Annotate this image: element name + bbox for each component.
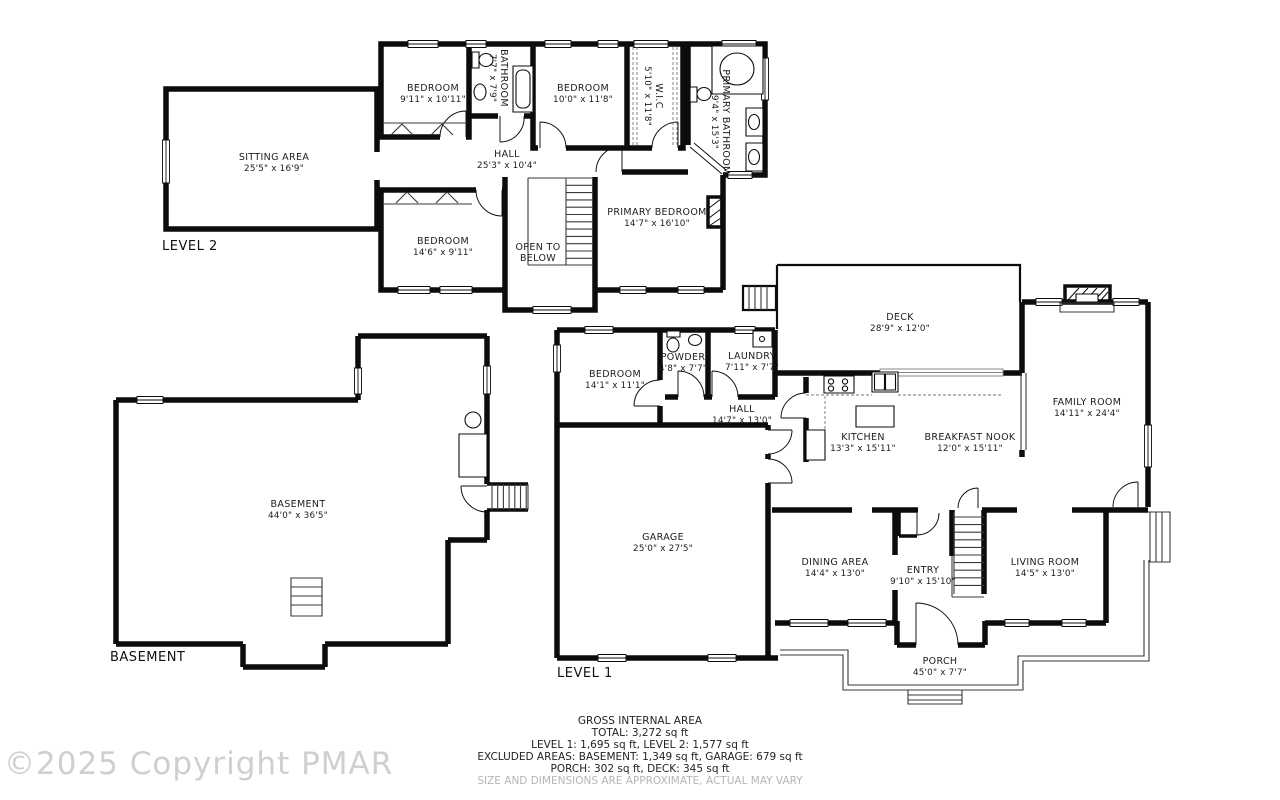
stove-burner-icon — [842, 379, 847, 384]
level1-walls — [557, 302, 1148, 658]
porch-steps — [908, 690, 962, 704]
room-dims: 9'4" x 15'3" — [709, 95, 719, 149]
deck-walls — [743, 265, 1020, 329]
room-label: FAMILY ROOM — [1053, 397, 1122, 408]
room-label: PRIMARY BATHROOM — [720, 69, 731, 174]
room-label: KITCHEN — [841, 432, 885, 443]
basement-stairs — [492, 484, 528, 510]
shelving-icon — [291, 578, 322, 616]
toilet-icon — [667, 338, 679, 352]
floor-plan-svg: SITTING AREA 25'5" x 16'9" BEDROOM 9'11"… — [0, 0, 1280, 800]
level1-title: LEVEL 1 — [557, 666, 613, 681]
room-dims: 7'7" x 7'9" — [487, 54, 497, 102]
room-label: LAUNDRY — [728, 351, 776, 362]
vanity-sink-icon — [749, 150, 760, 165]
bathtub-icon — [516, 70, 530, 108]
room-dims: 4'8" x 7'7" — [659, 364, 707, 374]
room-label-bathroom-rotated: BATHROOM 7'7" x 7'9" — [487, 49, 509, 107]
room-label-wic-rotated: W.I.C 5'10" x 11'8" — [642, 66, 664, 126]
room-label: HALL — [729, 404, 755, 415]
room-dims: 25'3" x 10'4" — [477, 161, 537, 171]
room-label: BELOW — [520, 253, 556, 264]
room-dims: 10'0" x 11'8" — [553, 95, 613, 105]
summary-porch-deck: PORCH: 302 sq ft, DECK: 345 sq ft — [551, 763, 730, 775]
room-label: PRIMARY BEDROOM — [607, 207, 706, 218]
room-label: BEDROOM — [407, 83, 459, 94]
basement-door — [461, 486, 487, 512]
room-dims: 25'5" x 16'9" — [244, 164, 304, 174]
entry-stairs — [952, 512, 984, 597]
basement-stair-walls — [487, 484, 528, 510]
family-room-railing — [1021, 373, 1026, 450]
room-dims: 25'0" x 27'5" — [633, 544, 693, 554]
room-label: GARAGE — [642, 532, 684, 543]
summary-disclaimer: SIZE AND DIMENSIONS ARE APPROXIMATE, ACT… — [477, 775, 803, 787]
basement-title: BASEMENT — [110, 650, 185, 665]
kitchen-counter — [806, 395, 1002, 430]
toilet-icon — [697, 88, 711, 101]
level2-title: LEVEL 2 — [162, 239, 218, 254]
summary-excluded: EXCLUDED AREAS: BASEMENT: 1,349 sq ft, G… — [477, 751, 802, 763]
stove-burner-icon — [828, 386, 833, 391]
room-dims: 9'10" x 15'10" — [890, 577, 956, 587]
furnace-icon — [459, 434, 487, 477]
room-label: BREAKFAST NOOK — [925, 432, 1016, 443]
level2-door-openings — [373, 111, 678, 195]
water-heater-icon — [465, 412, 481, 428]
room-label: BEDROOM — [589, 369, 641, 380]
room-dims: 13'3" x 15'11" — [830, 444, 896, 454]
room-label: HALL — [494, 149, 520, 160]
room-label: DECK — [886, 312, 914, 323]
stove-burner-icon — [828, 379, 833, 384]
room-dims: 44'0" x 36'5" — [268, 511, 328, 521]
floor-plan-page: SITTING AREA 25'5" x 16'9" BEDROOM 9'11"… — [0, 0, 1280, 800]
sink-icon — [689, 335, 702, 346]
basement-plan: BASEMENT 44'0" x 36'5" BASEMENT — [110, 336, 528, 667]
sink-icon — [474, 84, 486, 100]
room-label: LIVING ROOM — [1011, 557, 1080, 568]
summary-title: GROSS INTERNAL AREA — [578, 715, 703, 727]
level2-windows — [163, 41, 769, 314]
room-dims: 12'0" x 15'11" — [937, 444, 1003, 454]
room-label: POWDER — [661, 352, 706, 363]
vanity-sink-icon — [749, 115, 760, 130]
room-dims: 14'7" x 16'10" — [624, 219, 690, 229]
room-dims: 14'1" x 11'1" — [585, 381, 645, 391]
room-dims: 14'7" x 13'0" — [712, 416, 772, 426]
room-dims: 14'6" x 9'11" — [413, 248, 473, 258]
room-label: BEDROOM — [557, 83, 609, 94]
level2-window-lines — [166, 44, 765, 310]
stove-burner-icon — [842, 386, 847, 391]
room-label: DINING AREA — [802, 557, 869, 568]
area-summary: GROSS INTERNAL AREA TOTAL: 3,272 sq ft L… — [477, 715, 803, 787]
summary-total: TOTAL: 3,272 sq ft — [591, 727, 689, 739]
bay-window — [1148, 512, 1170, 562]
room-dims: 28'9" x 12'0" — [870, 324, 930, 334]
entry-closet-walls — [899, 510, 917, 536]
room-label: OPEN TO — [515, 242, 560, 253]
summary-levels: LEVEL 1: 1,695 sq ft, LEVEL 2: 1,577 sq … — [531, 739, 749, 751]
room-dims: 14'4" x 13'0" — [805, 569, 865, 579]
level1-plan: DECK 28'9" x 12'0" FAMILY ROOM 14'11" x … — [554, 265, 1171, 704]
room-label: BASEMENT — [271, 499, 326, 510]
room-label: BEDROOM — [417, 236, 469, 247]
room-label: SITTING AREA — [239, 152, 310, 163]
room-dims: 14'11" x 24'4" — [1054, 409, 1120, 419]
room-dims: 9'11" x 10'11" — [400, 95, 466, 105]
laundry-sink-icon — [760, 337, 765, 342]
level1-windows — [554, 299, 1152, 662]
room-dims: 45'0" x 7'7" — [913, 668, 967, 678]
level2-walls — [166, 44, 765, 310]
room-label: ENTRY — [907, 565, 939, 576]
room-dims: 7'11" x 7'7" — [725, 363, 779, 373]
deck-stairs — [749, 286, 767, 310]
level2-plan: SITTING AREA 25'5" x 16'9" BEDROOM 9'11"… — [162, 41, 769, 314]
fireplace-hatch-primary — [709, 199, 721, 226]
level1-window-lines — [557, 302, 1148, 658]
room-dims: 5'10" x 11'8" — [642, 66, 652, 126]
copyright-watermark: ©2025 Copyright PMAR — [4, 746, 393, 782]
basement-window-lines — [137, 366, 487, 400]
room-label: PORCH — [923, 656, 958, 667]
room-label: BATHROOM — [498, 49, 509, 107]
room-label: W.I.C — [653, 83, 664, 109]
room-dims: 14'5" x 13'0" — [1015, 569, 1075, 579]
